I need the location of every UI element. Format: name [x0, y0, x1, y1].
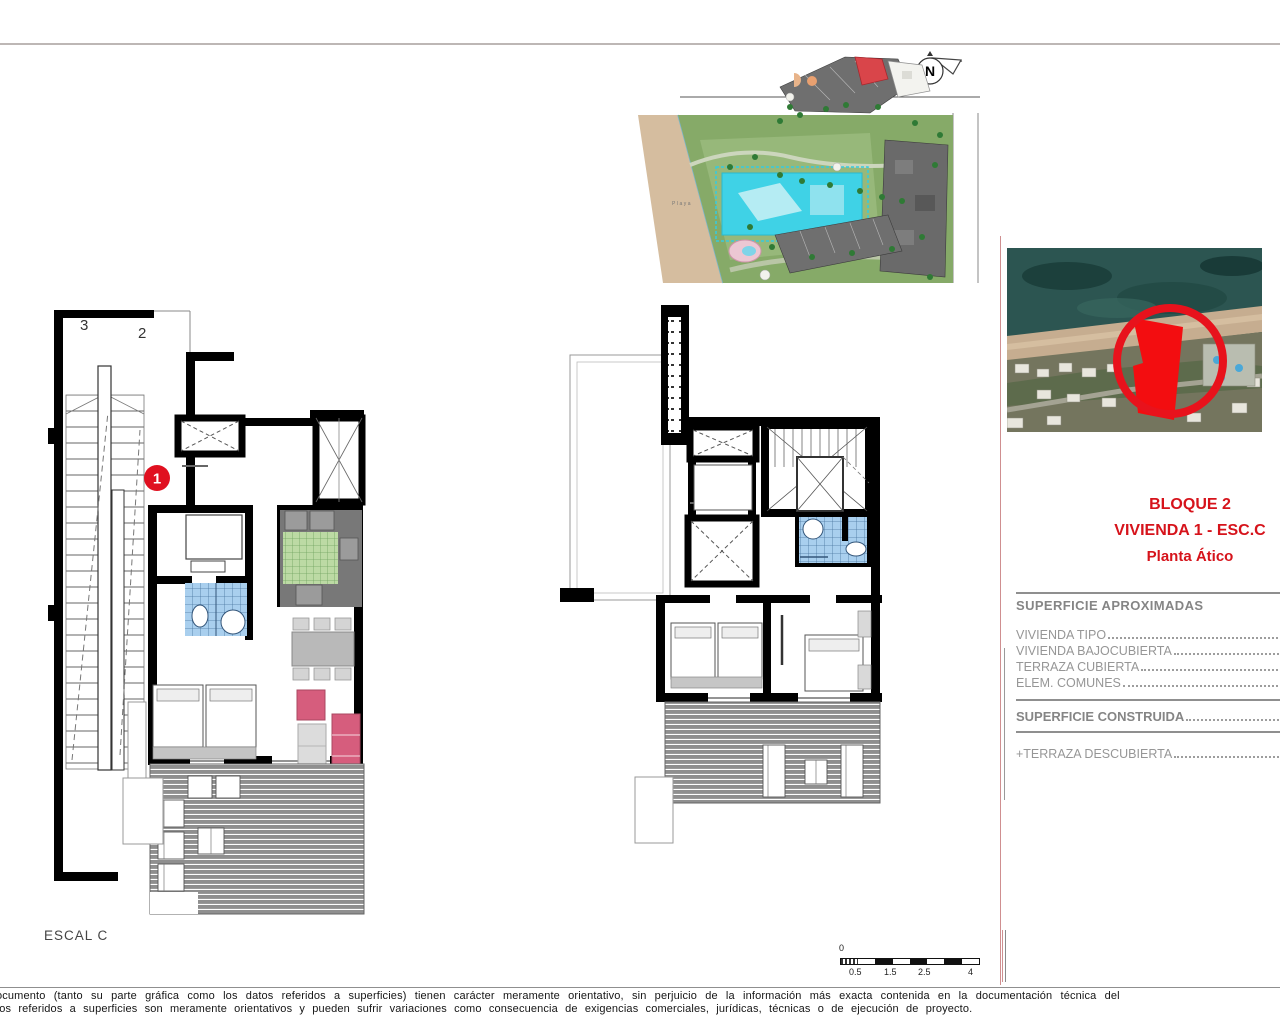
surface-total: SUPERFICIE CONSTRUIDA: [1016, 707, 1280, 724]
playa-label: Playa: [672, 201, 692, 207]
plan-sheet: N Playa: [0, 0, 1280, 1024]
building-block-north: [780, 57, 930, 113]
scale-bar-strip: [840, 958, 980, 965]
scale-tick-label: 2.5: [918, 967, 931, 977]
title-planta: Planta Ático: [1014, 544, 1280, 570]
title-bloque: BLOQUE 2: [1014, 492, 1280, 518]
aerial-photo: [1007, 248, 1262, 432]
surface-row-label: VIVIENDA BAJOCUBIERTA: [1016, 644, 1172, 658]
open-terrace-outline: [560, 355, 670, 602]
elevator-shaft: [178, 418, 242, 454]
surface-row-label: VIVIENDA TIPO: [1016, 628, 1106, 642]
bathroom-2: [797, 515, 869, 565]
north-label: N: [925, 63, 935, 79]
dot-leader: [1108, 637, 1280, 639]
surface-rule-bottom: [1016, 731, 1280, 733]
roof-shaft: [316, 418, 362, 502]
dot-leader: [1174, 756, 1280, 758]
panel-border-line: [1000, 236, 1001, 985]
building-block-east: [880, 140, 948, 277]
stairwell: [765, 425, 869, 513]
panel-border-segment2: [1002, 930, 1003, 982]
footer-rule: [0, 987, 1280, 988]
dot-leader: [1174, 653, 1280, 655]
dot-leader: [1186, 719, 1280, 721]
unit-marker: 1: [144, 465, 170, 491]
title-vivienda: VIVIENDA 1 - ESC.C: [1014, 518, 1280, 544]
dot-leader: [1141, 669, 1280, 671]
surface-row-label: TERRAZA CUBIERTA: [1016, 660, 1139, 674]
surface-row: VIVIENDA TIPO: [1016, 626, 1280, 642]
surface-total-label: SUPERFICIE CONSTRUIDA: [1016, 709, 1184, 724]
panel-border-segment3: [1005, 930, 1006, 982]
scale-tick-label: 1.5: [884, 967, 897, 977]
floor-plan-atico: 3 2: [40, 300, 380, 930]
panel-border-segment: [1004, 648, 1005, 800]
surface-rows: VIVIENDA TIPO VIVIENDA BAJOCUBIERTA TERR…: [1016, 626, 1280, 690]
resort-buildings: [1203, 344, 1255, 386]
planter-2: [635, 777, 673, 843]
surface-row: ELEM. COMUNES: [1016, 674, 1280, 690]
scale-tick-label: 4: [968, 967, 973, 977]
dining-set: [292, 618, 354, 680]
floor-plan-bajocubierta: [560, 305, 960, 850]
landing-label-2: 2: [138, 325, 146, 342]
dot-leader: [1123, 685, 1280, 687]
surface-row: TERRAZA CUBIERTA: [1016, 658, 1280, 674]
elevator-shaft-2: [688, 518, 756, 584]
surface-rule-mid: [1016, 699, 1280, 701]
plan-caption: ESCAL C: [44, 928, 108, 943]
terrace-2: [665, 702, 880, 803]
elevator-shaft-1: [690, 427, 756, 459]
bedroom-right: [782, 611, 871, 691]
plan-title-block: BLOQUE 2 VIVIENDA 1 - ESC.C Planta Ático: [1014, 492, 1280, 570]
terrace: [150, 764, 364, 914]
surface-extra: +TERRAZA DESCUBIERTA: [1016, 744, 1280, 761]
surface-row: VIVIENDA BAJOCUBIERTA: [1016, 642, 1280, 658]
landing-label-3: 3: [80, 317, 88, 334]
surface-heading: SUPERFICIE APROXIMADAS: [1016, 598, 1280, 613]
dressing-room: [186, 515, 242, 572]
disclaimer-line-1: ocumento (tanto su parte gráfica como lo…: [0, 990, 1280, 1002]
lobby: [694, 465, 752, 510]
bathroom: [185, 583, 247, 636]
scale-tick-label: 0.5: [849, 967, 862, 977]
surface-row-label: ELEM. COMUNES: [1016, 676, 1121, 690]
bedroom: [153, 685, 256, 759]
vent-shaft: [661, 305, 689, 445]
surface-extra-label: +TERRAZA DESCUBIERTA: [1016, 747, 1172, 761]
site-plan: N Playa: [630, 45, 1000, 290]
surface-rule-top: [1016, 592, 1280, 594]
disclaimer-line-2: tos referidos a superficies son merament…: [0, 1003, 1280, 1015]
unit-marker-label: 1: [153, 471, 161, 488]
scale-bar: 0 0.5 1.5 2.5 4: [838, 943, 988, 983]
kitchen: [280, 510, 362, 607]
scale-zero-label: 0: [839, 943, 844, 953]
bedroom-left: [671, 623, 762, 688]
